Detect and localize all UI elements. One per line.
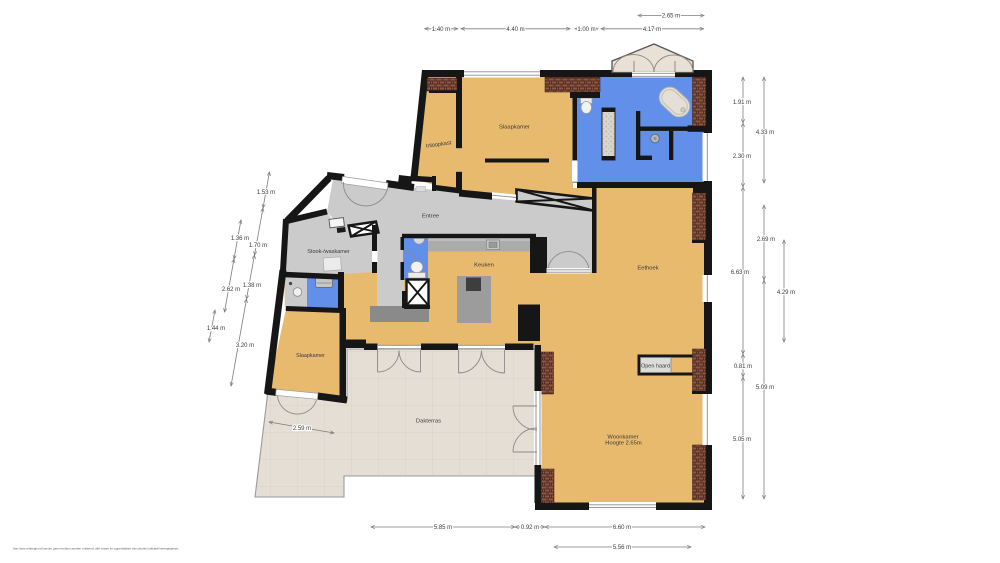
svg-text:4.17 m: 4.17 m xyxy=(643,27,661,33)
svg-text:6.63 m: 6.63 m xyxy=(731,270,749,276)
svg-text:1.44 m: 1.44 m xyxy=(207,326,225,332)
svg-text:Aan deze plattegrond kunnen ge: Aan deze plattegrond kunnen geen rechten… xyxy=(13,547,179,551)
svg-text:Hoogte 2.65m: Hoogte 2.65m xyxy=(605,440,642,446)
svg-text:3.20 m: 3.20 m xyxy=(236,343,254,349)
svg-text:1.91 m: 1.91 m xyxy=(733,100,751,106)
svg-text:1.00 m: 1.00 m xyxy=(577,27,595,33)
svg-text:2.30 m: 2.30 m xyxy=(733,154,751,160)
svg-text:Eethoek: Eethoek xyxy=(637,266,658,272)
svg-text:2.62 m: 2.62 m xyxy=(222,287,240,293)
svg-text:5.56 m: 5.56 m xyxy=(613,545,631,551)
svg-text:Entree: Entree xyxy=(422,213,439,219)
svg-text:4.33 m: 4.33 m xyxy=(756,130,774,136)
svg-text:1.36 m: 1.36 m xyxy=(231,236,249,242)
svg-text:1.38 m: 1.38 m xyxy=(243,283,261,289)
svg-text:2.59 m: 2.59 m xyxy=(293,426,311,432)
svg-text:Keuken: Keuken xyxy=(474,262,494,268)
svg-text:4.29 m: 4.29 m xyxy=(777,290,795,296)
svg-text:Open haard: Open haard xyxy=(641,363,670,369)
svg-text:1.70 m: 1.70 m xyxy=(249,243,267,249)
svg-text:Dakterras: Dakterras xyxy=(416,418,441,424)
svg-text:Slaapkamer: Slaapkamer xyxy=(296,353,325,359)
svg-text:5.85 m: 5.85 m xyxy=(434,525,452,531)
svg-text:Slaapkamer: Slaapkamer xyxy=(499,125,530,131)
svg-text:6.60 m: 6.60 m xyxy=(613,525,631,531)
svg-text:2.65 m: 2.65 m xyxy=(662,14,680,20)
svg-text:5.05 m: 5.05 m xyxy=(733,437,751,443)
svg-text:4.40 m: 4.40 m xyxy=(506,27,524,33)
svg-text:5.09 m: 5.09 m xyxy=(756,385,774,391)
svg-text:1.40 m: 1.40 m xyxy=(432,27,450,33)
svg-text:1.53 m: 1.53 m xyxy=(257,190,275,196)
svg-text:2.69 m: 2.69 m xyxy=(757,237,775,243)
svg-text:0.81 m: 0.81 m xyxy=(734,364,752,370)
svg-text:Stook-/waskamer: Stook-/waskamer xyxy=(307,249,350,255)
svg-text:0.92 m: 0.92 m xyxy=(521,525,539,531)
